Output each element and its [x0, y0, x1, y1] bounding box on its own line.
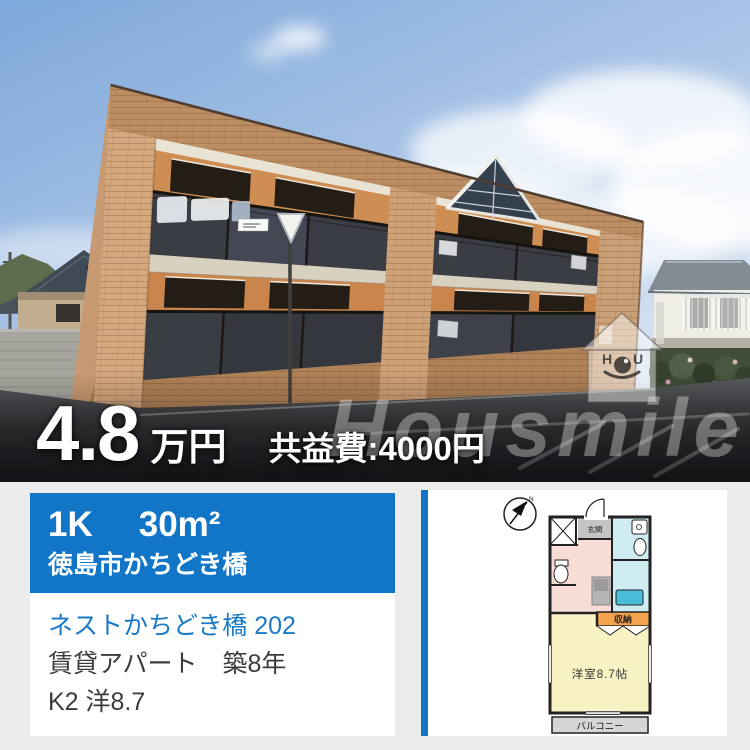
layout-type: 1K [48, 505, 93, 544]
label-balcony: バルコニー [576, 722, 623, 733]
logo-letter-h: H [602, 351, 612, 367]
rent-amount: 4.8 [36, 394, 138, 472]
listing-summary-card[interactable]: 1K30m² 徳島市かちどき橋 ネストかちどき橋 202 賃貸アパート 築8年 … [30, 493, 395, 736]
location: 徳島市かちどき橋 [48, 549, 377, 582]
listing-details: ネストかちどき橋 202 賃貸アパート 築8年 K2 洋8.7 [30, 593, 395, 736]
label-room: 洋室8.7帖 [572, 667, 629, 681]
property-photo[interactable]: H U Housmile 4.8 万円 共益費:4000円 [0, 0, 750, 482]
floorplan-image: N [428, 490, 720, 736]
logo-letter-u: U [633, 351, 643, 367]
label-storage: 収納 [614, 614, 632, 625]
listing-header: 1K30m² 徳島市かちどき橋 [30, 493, 395, 593]
building-type-age: 賃貸アパート 築8年 [48, 645, 377, 683]
balcony-banner [238, 219, 269, 231]
rent-unit: 万円 [150, 416, 226, 471]
floor-area: 30m² [139, 505, 221, 544]
label-entrance: 玄関 [588, 524, 603, 534]
property-name-link[interactable]: ネストかちどき橋 202 [48, 607, 377, 645]
maintenance-fee: 共益費:4000円 [268, 422, 484, 470]
floorplan-card[interactable]: N [421, 490, 727, 736]
price-bar: 4.8 万円 共益費:4000円 [36, 394, 485, 472]
balcony-railing [682, 294, 750, 330]
layout-area-line: 1K30m² [48, 503, 377, 547]
compass-n: N [529, 496, 534, 503]
room-layout: K2 洋8.7 [48, 683, 377, 721]
listing-info-section: 1K30m² 徳島市かちどき橋 ネストかちどき橋 202 賃貸アパート 築8年 … [0, 482, 750, 750]
